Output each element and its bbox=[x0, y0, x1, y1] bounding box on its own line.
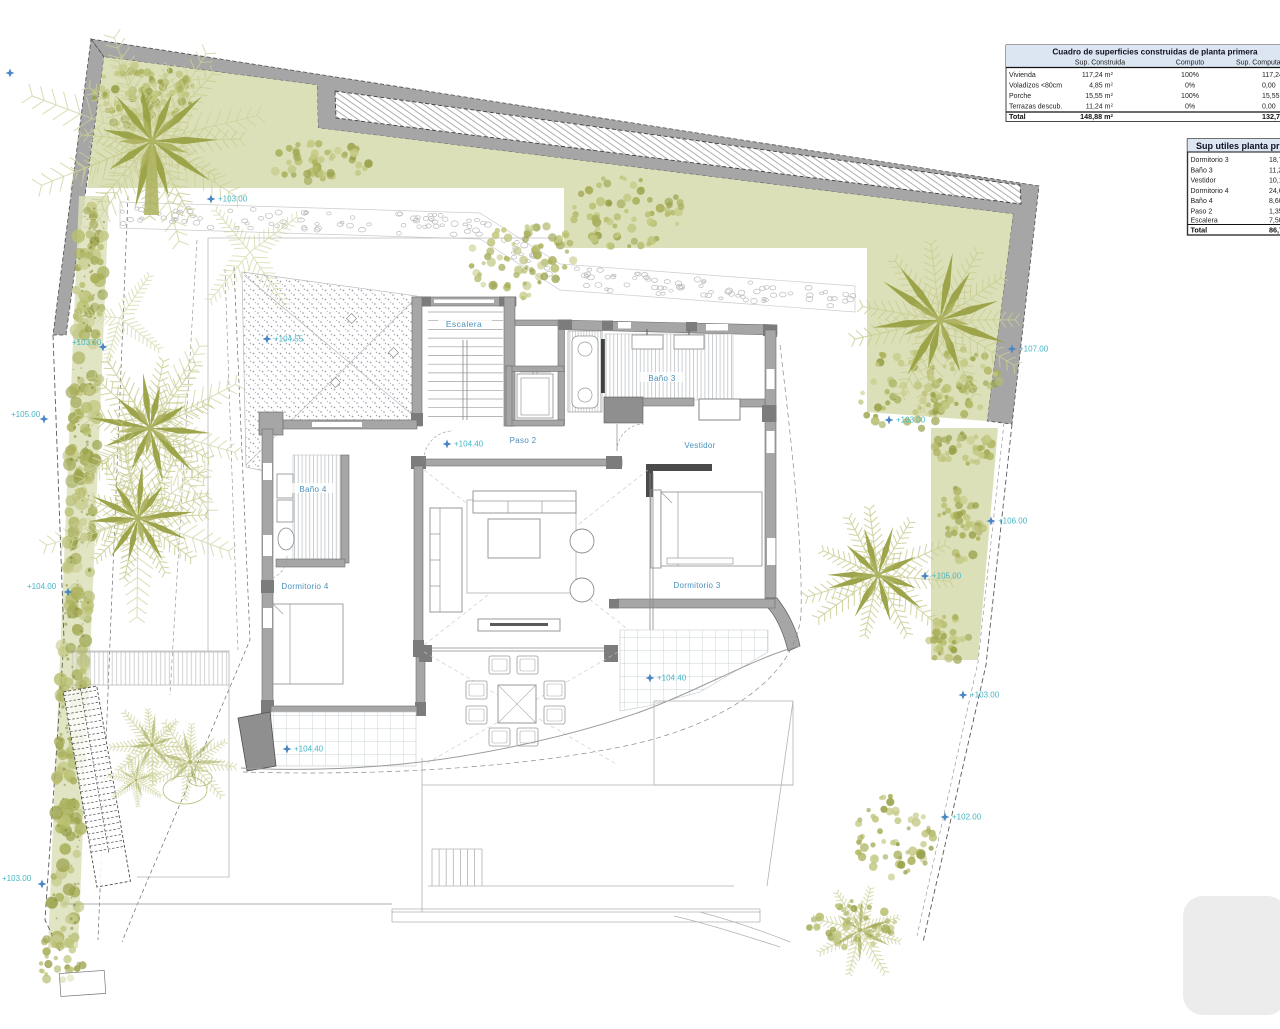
svg-text:Dormitorio 3: Dormitorio 3 bbox=[1191, 157, 1229, 164]
svg-text:Dormitorio 4: Dormitorio 4 bbox=[1191, 188, 1229, 195]
svg-text:10,15: 10,15 bbox=[1269, 178, 1280, 185]
svg-text:Computo: Computo bbox=[1176, 60, 1205, 67]
svg-text:86,72: 86,72 bbox=[1269, 226, 1280, 235]
svg-text:0,00: 0,00 bbox=[1262, 104, 1276, 111]
svg-text:+105.00: +105.00 bbox=[11, 410, 41, 419]
svg-text:Paso 2: Paso 2 bbox=[510, 436, 537, 445]
svg-text:+103.00: +103.00 bbox=[896, 416, 926, 425]
svg-text:Vivienda: Vivienda bbox=[1009, 72, 1036, 79]
svg-text:+103.00: +103.00 bbox=[218, 195, 248, 204]
svg-text:Baño 3: Baño 3 bbox=[1191, 167, 1213, 174]
svg-text:Baño 4: Baño 4 bbox=[1191, 198, 1213, 205]
svg-text:Total: Total bbox=[1009, 112, 1026, 121]
svg-text:100%: 100% bbox=[1181, 93, 1199, 100]
svg-text:7,50: 7,50 bbox=[1269, 218, 1280, 225]
svg-text:Total: Total bbox=[1191, 226, 1208, 235]
svg-text:+103.00: +103.00 bbox=[970, 691, 1000, 700]
svg-text:Cuadro de superficies construi: Cuadro de superficies construidas de pla… bbox=[1052, 48, 1258, 57]
svg-text:15,55 m2: 15,55 m2 bbox=[1085, 92, 1113, 100]
svg-text:Terrazas descub.: Terrazas descub. bbox=[1009, 104, 1062, 111]
svg-text:Dormitorio 4: Dormitorio 4 bbox=[281, 582, 328, 591]
svg-text:11,27: 11,27 bbox=[1269, 167, 1280, 174]
svg-text:0%: 0% bbox=[1185, 83, 1195, 90]
svg-text:Porche: Porche bbox=[1009, 93, 1031, 100]
svg-text:Dormitorio 3: Dormitorio 3 bbox=[673, 581, 720, 590]
svg-text:0,00: 0,00 bbox=[1262, 83, 1276, 90]
svg-text:Baño 3: Baño 3 bbox=[648, 374, 675, 383]
svg-text:24,60: 24,60 bbox=[1269, 188, 1280, 195]
svg-text:Baño 4: Baño 4 bbox=[299, 485, 326, 494]
svg-text:+104.40: +104.40 bbox=[454, 440, 484, 449]
svg-text:+103.00: +103.00 bbox=[72, 338, 102, 347]
svg-text:+104.55: +104.55 bbox=[274, 335, 304, 344]
svg-text:Vestidor: Vestidor bbox=[1191, 178, 1217, 185]
svg-text:Vestidor: Vestidor bbox=[684, 441, 715, 450]
svg-text:117,24: 117,24 bbox=[1262, 72, 1280, 79]
svg-text:Voladizos <80cm: Voladizos <80cm bbox=[1009, 83, 1062, 90]
svg-text:148,88 m2: 148,88 m2 bbox=[1080, 112, 1113, 121]
svg-text:+104.40: +104.40 bbox=[657, 674, 687, 683]
svg-text:+103.00: +103.00 bbox=[2, 874, 32, 883]
svg-text:18,75: 18,75 bbox=[1269, 157, 1280, 164]
svg-text:15,55: 15,55 bbox=[1262, 93, 1280, 100]
svg-text:100%: 100% bbox=[1181, 72, 1199, 79]
svg-text:Paso 2: Paso 2 bbox=[1191, 209, 1213, 216]
svg-text:+102.00: +102.00 bbox=[952, 813, 982, 822]
svg-text:Sup. Computable: Sup. Computable bbox=[1236, 60, 1280, 67]
svg-text:0%: 0% bbox=[1185, 104, 1195, 111]
svg-text:+105.00: +105.00 bbox=[932, 572, 962, 581]
svg-text:+107.00: +107.00 bbox=[1019, 345, 1049, 354]
svg-text:11,24 m2: 11,24 m2 bbox=[1086, 103, 1114, 111]
svg-text:132,79: 132,79 bbox=[1262, 112, 1280, 121]
svg-text:Sup. Construida: Sup. Construida bbox=[1075, 60, 1125, 67]
svg-text:+104.00: +104.00 bbox=[27, 582, 57, 591]
svg-text:117,24 m2: 117,24 m2 bbox=[1082, 71, 1114, 79]
svg-text:+104.40: +104.40 bbox=[294, 745, 324, 754]
svg-text:Sup utiles planta primera: Sup utiles planta primera bbox=[1196, 141, 1280, 151]
svg-text:Escalera: Escalera bbox=[446, 319, 482, 329]
svg-text:8,60: 8,60 bbox=[1269, 198, 1280, 205]
svg-text:1,35: 1,35 bbox=[1269, 209, 1280, 216]
svg-text:+106.00: +106.00 bbox=[998, 517, 1028, 526]
svg-text:Escalera: Escalera bbox=[1191, 218, 1218, 225]
svg-text:4,85 m2: 4,85 m2 bbox=[1089, 82, 1113, 90]
